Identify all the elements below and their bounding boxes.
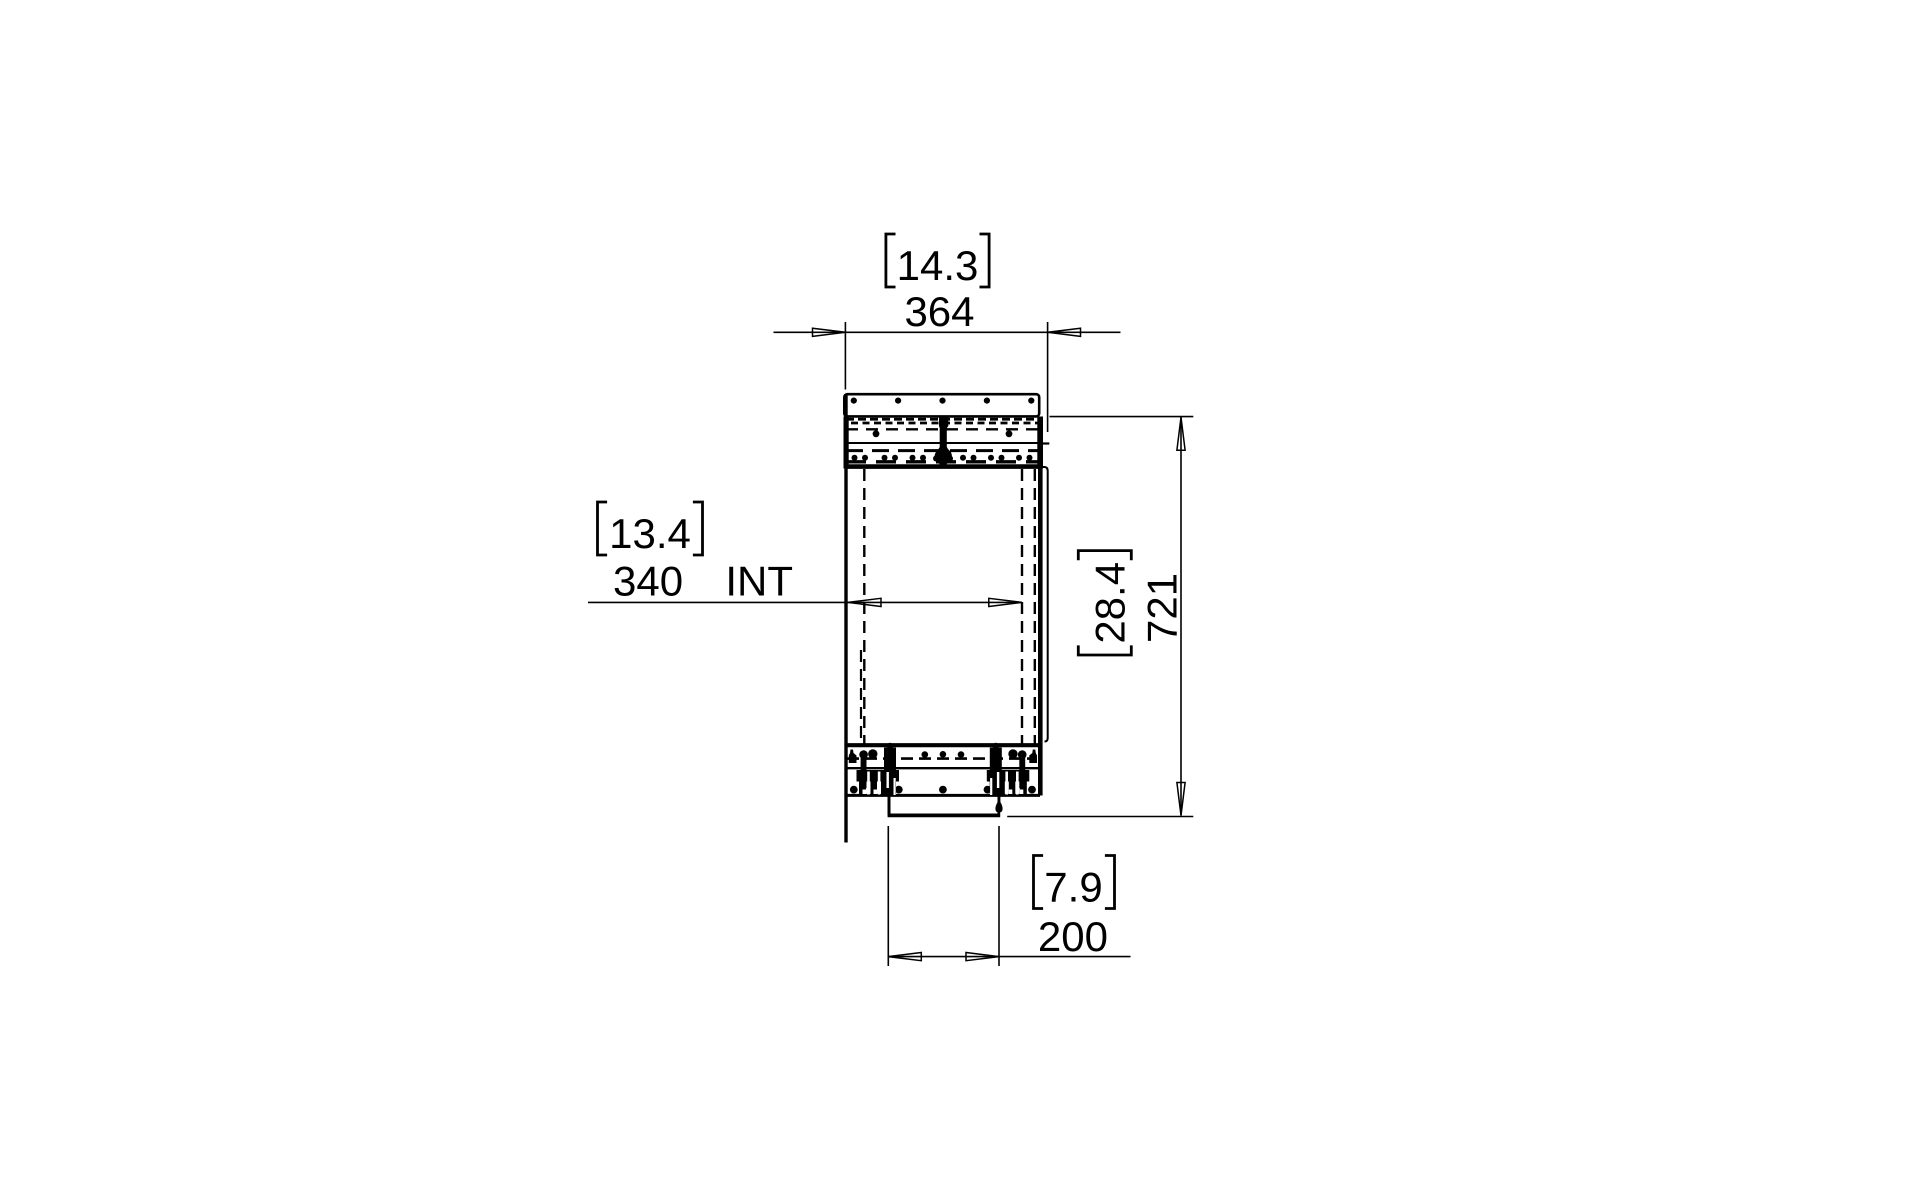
svg-text:7.9: 7.9 (1044, 864, 1102, 911)
svg-text:28.4: 28.4 (1086, 562, 1133, 644)
svg-text:721: 721 (1138, 573, 1185, 643)
svg-text:364: 364 (904, 288, 974, 335)
svg-text:INT: INT (725, 557, 793, 604)
svg-text:200: 200 (1038, 913, 1108, 960)
svg-text:13.4: 13.4 (609, 510, 691, 557)
svg-text:14.3: 14.3 (897, 242, 979, 289)
svg-text:340: 340 (613, 557, 683, 604)
